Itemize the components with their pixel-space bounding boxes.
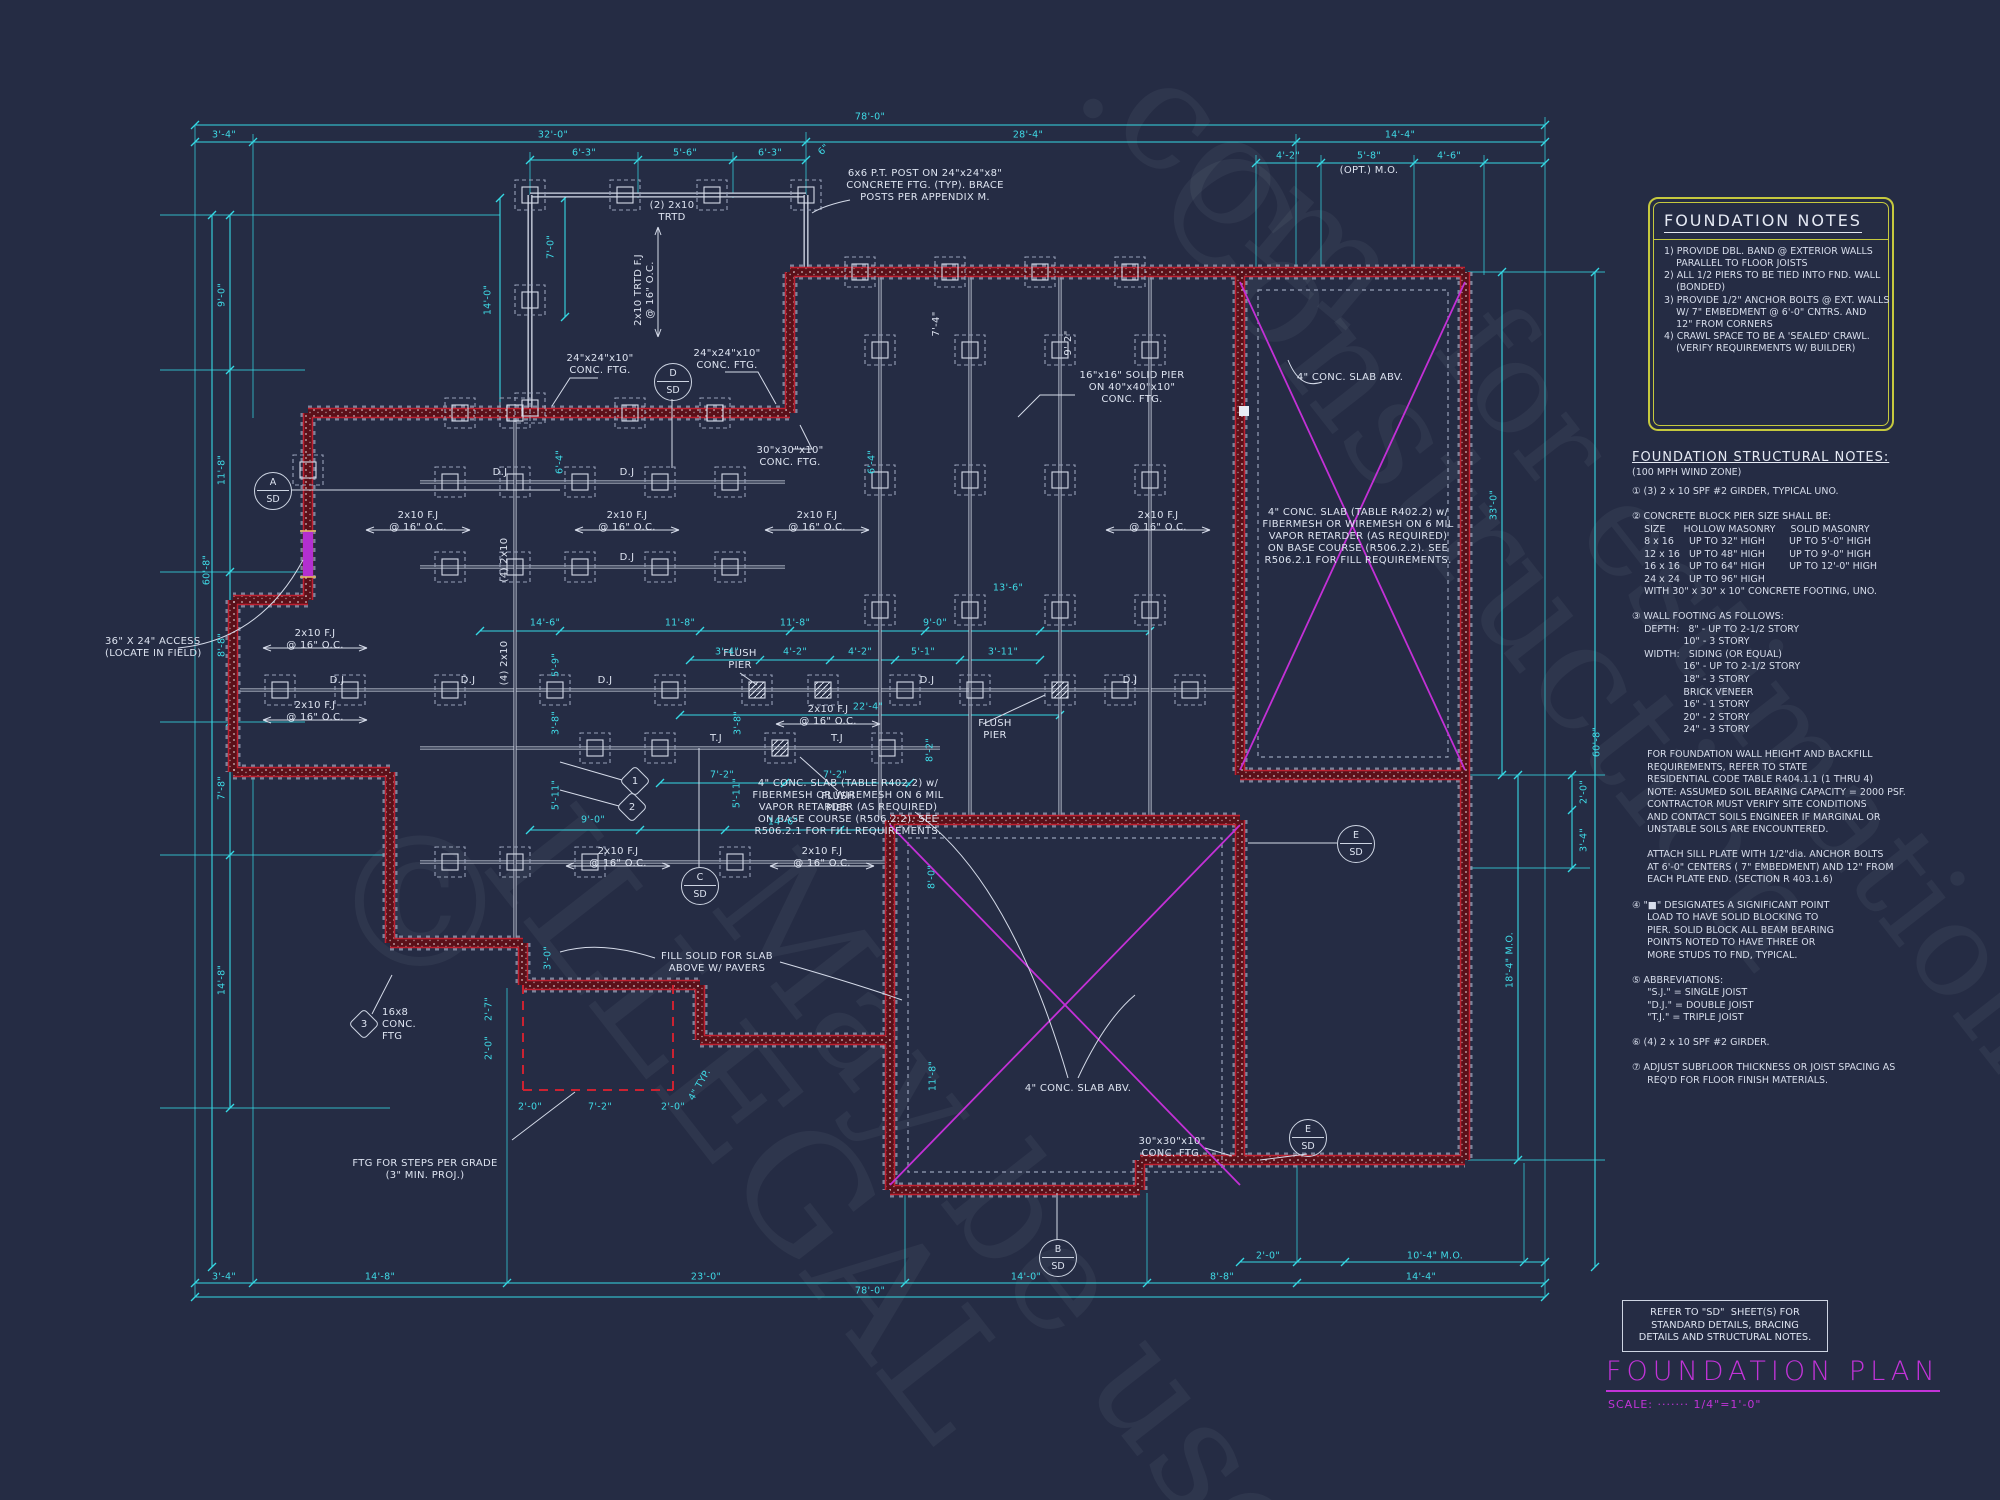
label-girder4: (4) 2x10 — [499, 538, 511, 583]
label-slab_abv: 4" CONC. SLAB ABV. — [1025, 1083, 1131, 1095]
label-d7_2: 7'-2" — [710, 769, 734, 780]
label-d2_0: 2'-0" — [1256, 1250, 1280, 1261]
label-d2_0: 2'-0" — [483, 1036, 494, 1060]
label-d5_8: 5'-8" — [1357, 150, 1381, 161]
section-marker-E: ESD — [1337, 825, 1375, 863]
keynote-number: 3 — [354, 1014, 374, 1034]
label-ftg30: 30"x30"x10" CONC. FTG. — [756, 445, 823, 469]
label-post_note: 6x6 P.T. POST ON 24"x24"x8" CONCRETE FTG… — [846, 168, 1004, 204]
section-divider — [1292, 1137, 1324, 1138]
blueprint-page: .comConstructionfor estimation©ILLEGALMa… — [0, 0, 2000, 1500]
label-d23_0: 23'-0" — [691, 1271, 721, 1282]
label-d4_2: 4'-2" — [848, 646, 872, 657]
label-d11_8: 11'-8" — [216, 455, 227, 485]
structural-notes-subtitle: (100 MPH WIND ZONE) — [1632, 467, 1932, 478]
label-d3_4: 3'-4" — [1578, 828, 1589, 852]
label-d9_0: 9'-0" — [581, 814, 605, 825]
label-d7_4: 7'-4" — [931, 311, 943, 336]
label-fj_trtd: 2x10 TRTD F.J @ 16" O.C. — [633, 254, 657, 326]
label-ftg16x8: 16x8 CONC. FTG — [382, 1007, 416, 1043]
label-d3_4: 3'-4" — [212, 129, 236, 140]
label-d7_0: 7'-0" — [545, 235, 556, 259]
section-sheet: SD — [1290, 1142, 1326, 1152]
label-fj: 2x10 F.J @ 16" O.C. — [788, 510, 846, 534]
section-letter: A — [255, 478, 291, 488]
label-girder4: (4) 2x10 — [499, 641, 511, 686]
label-ftg30: 30"x30"x10" CONC. FTG. — [1138, 1136, 1205, 1160]
label-d5_11: 5'-11" — [550, 780, 561, 810]
label-d8_8: 8'-8" — [216, 633, 227, 657]
label-d5_11: 5'-11" — [731, 778, 742, 808]
label-d6_4: 6'-4" — [554, 450, 565, 474]
section-letter: B — [1040, 1245, 1076, 1255]
label-d8_0: 8'-0" — [926, 865, 937, 889]
section-divider — [257, 490, 289, 491]
label-dj: D.J — [620, 552, 635, 564]
label-d14_8: 14'-8" — [216, 965, 227, 995]
label-fill_solid: FILL SOLID FOR SLAB ABOVE W/ PAVERS — [661, 951, 773, 975]
label-d14_4: 14'-4" — [1385, 129, 1415, 140]
section-marker-D: DSD — [654, 363, 692, 401]
label-dj: D.J — [330, 675, 345, 687]
label-d8_2: 8'-2" — [924, 738, 935, 762]
label-d14_6: 14'-6" — [530, 617, 560, 628]
label-d5_1: 5'-1" — [911, 646, 935, 657]
section-sheet: SD — [655, 386, 691, 396]
section-letter: E — [1290, 1125, 1326, 1135]
label-fj: 2x10 F.J @ 16" O.C. — [589, 846, 647, 870]
label-d14_8: 14'-8" — [365, 1271, 395, 1282]
label-slab_abv: 4" CONC. SLAB ABV. — [1297, 372, 1403, 384]
section-letter: C — [682, 873, 718, 883]
label-d6_4: 6'-4" — [866, 450, 877, 474]
label-fj: 2x10 F.J @ 16" O.C. — [793, 846, 851, 870]
label-d18_4mo: 18'-4" M.O. — [1504, 932, 1515, 988]
section-divider — [684, 885, 716, 886]
label-d3_8: 3'-8" — [550, 711, 561, 735]
section-sheet: SD — [1338, 848, 1374, 858]
label-fj: 2x10 F.J @ 16" O.C. — [598, 510, 656, 534]
label-d33_0: 33'-0" — [1488, 490, 1499, 520]
label-dj: D.J — [493, 467, 508, 479]
label-d4_2: 4'-2" — [1276, 150, 1300, 161]
label-fj: 2x10 F.J @ 16" O.C. — [1129, 510, 1187, 534]
sheet-title: FOUNDATION PLAN — [1606, 1356, 1940, 1392]
label-d8_8: 8'-8" — [1210, 1271, 1234, 1282]
structural-notes: FOUNDATION STRUCTURAL NOTES: (100 MPH WI… — [1632, 450, 1932, 1088]
label-d13_6: 13'-6" — [993, 582, 1023, 593]
label-ftg24: 24"x24"x10" CONC. FTG. — [693, 348, 760, 372]
foundation-notes-box: FOUNDATION NOTES 1) PROVIDE DBL. BAND @ … — [1648, 197, 1894, 431]
label-ftg24: 24"x24"x10" CONC. FTG. — [566, 353, 633, 377]
label-d60_8: 60'-8" — [201, 555, 212, 585]
label-fj: 2x10 F.J @ 16" O.C. — [286, 628, 344, 652]
label-dj: D.J — [1123, 675, 1138, 687]
section-letter: D — [655, 369, 691, 379]
section-marker-B: BSD — [1039, 1239, 1077, 1277]
label-d3_11: 3'-11" — [988, 646, 1018, 657]
label-ftg_steps: FTG FOR STEPS PER GRADE (3" MIN. PROJ.) — [352, 1158, 497, 1182]
label-d2_7: 2'-7" — [483, 997, 494, 1021]
foundation-notes-body: 1) PROVIDE DBL. BAND @ EXTERIOR WALLS PA… — [1664, 246, 1878, 355]
foundation-notes-title: FOUNDATION NOTES — [1664, 211, 1862, 233]
label-d3_0: 3'-0" — [542, 946, 553, 970]
label-d14_6: 14'-6" — [768, 816, 798, 827]
label-d3_8: 3'-8" — [732, 711, 743, 735]
section-sheet: SD — [682, 890, 718, 900]
label-d32_0: 32'-0" — [538, 129, 568, 140]
label-tj: T.J — [710, 733, 722, 745]
section-marker-A: ASD — [254, 472, 292, 510]
label-flush: FLUSH PIER — [978, 718, 1012, 742]
keynote-number: 2 — [622, 797, 642, 817]
sheet-scale: SCALE: ······· 1/4"=1'-0" — [1608, 1398, 1761, 1411]
label-d4_2: 4'-2" — [783, 646, 807, 657]
label-d10_4mo: 10'-4" M.O. — [1407, 1250, 1463, 1261]
label-pier16: 16"x16" SOLID PIER ON 40"x40"x10" CONC. … — [1079, 370, 1184, 406]
label-d4_6: 4'-6" — [1437, 150, 1461, 161]
structural-notes-body: ① (3) 2 x 10 SPF #2 GIRDER, TYPICAL UNO.… — [1632, 486, 1932, 1088]
label-d11_8: 11'-8" — [927, 1061, 938, 1091]
label-d78_0: 78'-0" — [855, 111, 885, 122]
label-dj: D.J — [920, 675, 935, 687]
foundation-notes-inner: FOUNDATION NOTES 1) PROVIDE DBL. BAND @ … — [1653, 202, 1889, 426]
section-divider — [1340, 843, 1372, 844]
foundation-notes-separator — [1654, 239, 1888, 240]
label-dj: D.J — [461, 675, 476, 687]
label-d2_0: 2'-0" — [661, 1101, 685, 1112]
section-marker-C: CSD — [681, 867, 719, 905]
label-d5_9: 5'-9" — [550, 653, 561, 677]
label-d7_2: 7'-2" — [823, 769, 847, 780]
label-d2_0: 2'-0" — [518, 1101, 542, 1112]
section-divider — [657, 381, 689, 382]
label-d7_8: 7'-8" — [216, 776, 227, 800]
label-d9_0: 9'-0" — [923, 617, 947, 628]
label-d9_2: 9'-2" — [1063, 330, 1075, 355]
label-d6_3: 6'-3" — [572, 147, 596, 158]
label-slab_note: 4" CONC. SLAB (TABLE R402.2) w/ FIBERMES… — [752, 778, 943, 838]
label-opt_mo: (OPT.) M.O. — [1340, 165, 1399, 177]
structural-notes-title: FOUNDATION STRUCTURAL NOTES: — [1632, 450, 1932, 465]
label-d14_0: 14'-0" — [1011, 1271, 1041, 1282]
label-d28_4: 28'-4" — [1013, 129, 1043, 140]
label-d5_6: 5'-6" — [673, 147, 697, 158]
label-d3_4: 3'-4" — [212, 1271, 236, 1282]
label-access: 36" X 24" ACCESS (LOCATE IN FIELD) — [105, 636, 202, 660]
label-d2_0: 2'-0" — [1578, 780, 1589, 804]
label-trtd2: (2) 2x10 TRTD — [650, 200, 695, 224]
label-tj: T.J — [831, 733, 843, 745]
keynote-number: 1 — [625, 771, 645, 791]
label-d9_0: 9'-0" — [216, 283, 227, 307]
label-dj: D.J — [598, 675, 613, 687]
label-d11_8: 11'-8" — [780, 617, 810, 628]
label-d14_4: 14'-4" — [1406, 1271, 1436, 1282]
section-sheet: SD — [255, 495, 291, 505]
sd-reference-box: REFER TO "SD" SHEET(S) FOR STANDARD DETA… — [1622, 1300, 1828, 1352]
label-d3_4: 3'-4" — [715, 646, 739, 657]
label-d14_0: 14'-0" — [482, 285, 493, 315]
label-d22_4: 22'-4" — [853, 701, 883, 712]
label-d60_8: 60'-8" — [1591, 727, 1602, 757]
label-fj: 2x10 F.J @ 16" O.C. — [286, 700, 344, 724]
section-letter: E — [1338, 831, 1374, 841]
section-divider — [1042, 1257, 1074, 1258]
label-dj: D.J — [620, 467, 635, 479]
label-d6_3: 6'-3" — [758, 147, 782, 158]
section-marker-E: ESD — [1289, 1119, 1327, 1157]
label-d11_8: 11'-8" — [665, 617, 695, 628]
label-fj: 2x10 F.J @ 16" O.C. — [389, 510, 447, 534]
label-fj: 2x10 F.J @ 16" O.C. — [799, 704, 857, 728]
label-d7_2: 7'-2" — [588, 1101, 612, 1112]
section-sheet: SD — [1040, 1262, 1076, 1272]
label-slab_note: 4" CONC. SLAB (TABLE R402.2) w/ FIBERMES… — [1262, 507, 1453, 567]
label-d78_0: 78'-0" — [855, 1285, 885, 1296]
